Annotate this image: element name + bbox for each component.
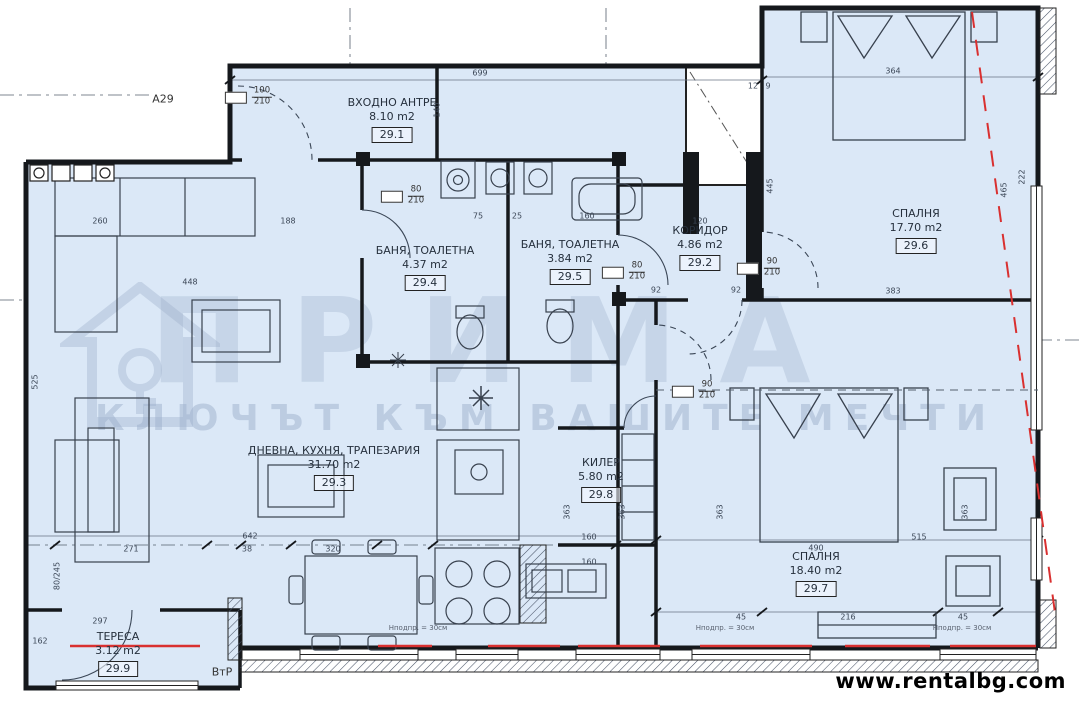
door-height: 210 <box>699 391 715 401</box>
door-height: 210 <box>408 196 424 206</box>
website-watermark: www.rentalbg.com <box>835 669 1066 693</box>
dimension-label: 140 <box>433 102 442 117</box>
room-label-29.6: СПАЛНЯ17.70 m229.6 <box>890 207 943 254</box>
dimension-label: 297 <box>92 617 107 626</box>
room-label-29.9: ТЕРЕСА3.12 m229.9 <box>95 630 141 677</box>
room-label-29.2: КОРИДОР4.86 m229.2 <box>672 224 727 271</box>
room-area: 17.70 m2 <box>890 221 943 235</box>
dimension-label: 465 <box>1000 182 1009 197</box>
room-number-box: 29.2 <box>680 255 721 271</box>
room-label-29.1: ВХОДНО АНТРЕ8.10 m229.1 <box>348 96 437 143</box>
dimension-label: 25 <box>512 212 522 221</box>
door-symbol <box>602 267 624 279</box>
door-size-label: 90210 <box>699 381 715 402</box>
door-size-label: 90210 <box>764 258 780 279</box>
dimension-label: 38 <box>242 545 252 554</box>
door-symbol <box>737 263 759 275</box>
dimension-label: 260 <box>92 217 107 226</box>
room-number-box: 29.7 <box>796 581 837 597</box>
dimension-label: 120 <box>692 217 707 226</box>
dimension-label: 383 <box>885 287 900 296</box>
room-number-box: 29.6 <box>896 238 937 254</box>
dimension-label: 80/245 <box>53 562 62 590</box>
door-height: 210 <box>764 268 780 278</box>
dimension-label: 188 <box>280 217 295 226</box>
dimension-label: 75 <box>473 212 483 221</box>
room-name: БАНЯ, ТОАЛЕТНА <box>376 244 475 258</box>
parapet-note: Нподпр. = 30см <box>696 624 755 632</box>
dimension-label: 525 <box>31 374 40 389</box>
dimension-label: 92 <box>731 286 741 295</box>
dimension-label: 45 <box>958 613 968 622</box>
room-area: 18.40 m2 <box>790 564 843 578</box>
dimension-label: 490 <box>808 544 823 553</box>
room-name: БАНЯ, ТОАЛЕТНА <box>521 238 620 252</box>
room-area: 8.10 m2 <box>348 110 437 124</box>
door-height: 210 <box>254 97 270 107</box>
room-label-29.4: БАНЯ, ТОАЛЕТНА4.37 m229.4 <box>376 244 475 291</box>
room-name: ДНЕВНА, КУХНЯ, ТРАПЕЗАРИЯ <box>248 444 420 458</box>
room-number-box: 29.9 <box>98 661 139 677</box>
dimension-label: 92 <box>651 286 661 295</box>
room-label-29.7: СПАЛНЯ18.40 m229.7 <box>790 550 843 597</box>
plan-marker: А29 <box>152 93 174 106</box>
dimension-label: 160 <box>581 533 596 542</box>
parapet-note: Нподпр. = 30см <box>389 624 448 632</box>
dimension-label: 445 <box>766 178 775 193</box>
room-label-29.8: КИЛЕР5.80 m229.8 <box>578 456 624 503</box>
room-number-box: 29.8 <box>581 487 622 503</box>
dimension-label: 642 <box>242 532 257 541</box>
dimension-label: 222 <box>1018 169 1027 184</box>
dimension-label: 515 <box>911 533 926 542</box>
room-label-29.3: ДНЕВНА, КУХНЯ, ТРАПЕЗАРИЯ31.70 m229.3 <box>248 444 420 491</box>
labels-layer: ВХОДНО АНТРЕ8.10 m229.1КОРИДОР4.86 m229.… <box>0 0 1080 701</box>
room-name: КОРИДОР <box>672 224 727 238</box>
room-number-box: 29.5 <box>550 269 591 285</box>
door-height: 210 <box>629 272 645 282</box>
dimension-label: 363 <box>716 504 725 519</box>
room-name: ВХОДНО АНТРЕ <box>348 96 437 110</box>
door-size-label: 80210 <box>629 262 645 283</box>
door-symbol <box>672 386 694 398</box>
room-area: 5.80 m2 <box>578 470 624 484</box>
door-symbol <box>381 191 403 203</box>
dimension-label: 162 <box>32 637 47 646</box>
dimension-label: 363 <box>563 504 572 519</box>
dimension-label: 9 <box>765 82 770 91</box>
room-name: КИЛЕР <box>578 456 624 470</box>
dimension-label: 448 <box>182 278 197 287</box>
room-area: 3.84 m2 <box>521 252 620 266</box>
dimension-label: 12 <box>748 82 758 91</box>
dimension-label: 271 <box>123 545 138 554</box>
door-size-label: 80210 <box>408 186 424 207</box>
dimension-label: 363 <box>961 504 970 519</box>
parapet-note: Нподпр. = 30см <box>933 624 992 632</box>
room-name: СПАЛНЯ <box>890 207 943 221</box>
dimension-label: 699 <box>472 69 487 78</box>
door-symbol <box>225 92 247 104</box>
room-area: 4.86 m2 <box>672 238 727 252</box>
dimension-label: 160 <box>581 558 596 567</box>
room-name: ТЕРЕСА <box>95 630 141 644</box>
door-size-label: 100210 <box>252 87 272 108</box>
room-number-box: 29.1 <box>372 127 413 143</box>
dimension-label: 320 <box>325 545 340 554</box>
room-area: 3.12 m2 <box>95 644 141 658</box>
dimension-label: 160 <box>579 212 594 221</box>
room-number-box: 29.4 <box>405 275 446 291</box>
plan-marker: ВтР <box>212 666 233 679</box>
dimension-label: 364 <box>885 67 900 76</box>
dimension-label: 216 <box>840 613 855 622</box>
dimension-label: 363 <box>618 504 627 519</box>
floorplan-sheet: ПРИМА КЛЮЧЪТ КЪМ ВАШИТЕ МЕЧТИ <box>0 0 1080 701</box>
room-number-box: 29.3 <box>314 475 355 491</box>
dimension-label: 45 <box>736 613 746 622</box>
room-area: 31.70 m2 <box>248 458 420 472</box>
room-area: 4.37 m2 <box>376 258 475 272</box>
